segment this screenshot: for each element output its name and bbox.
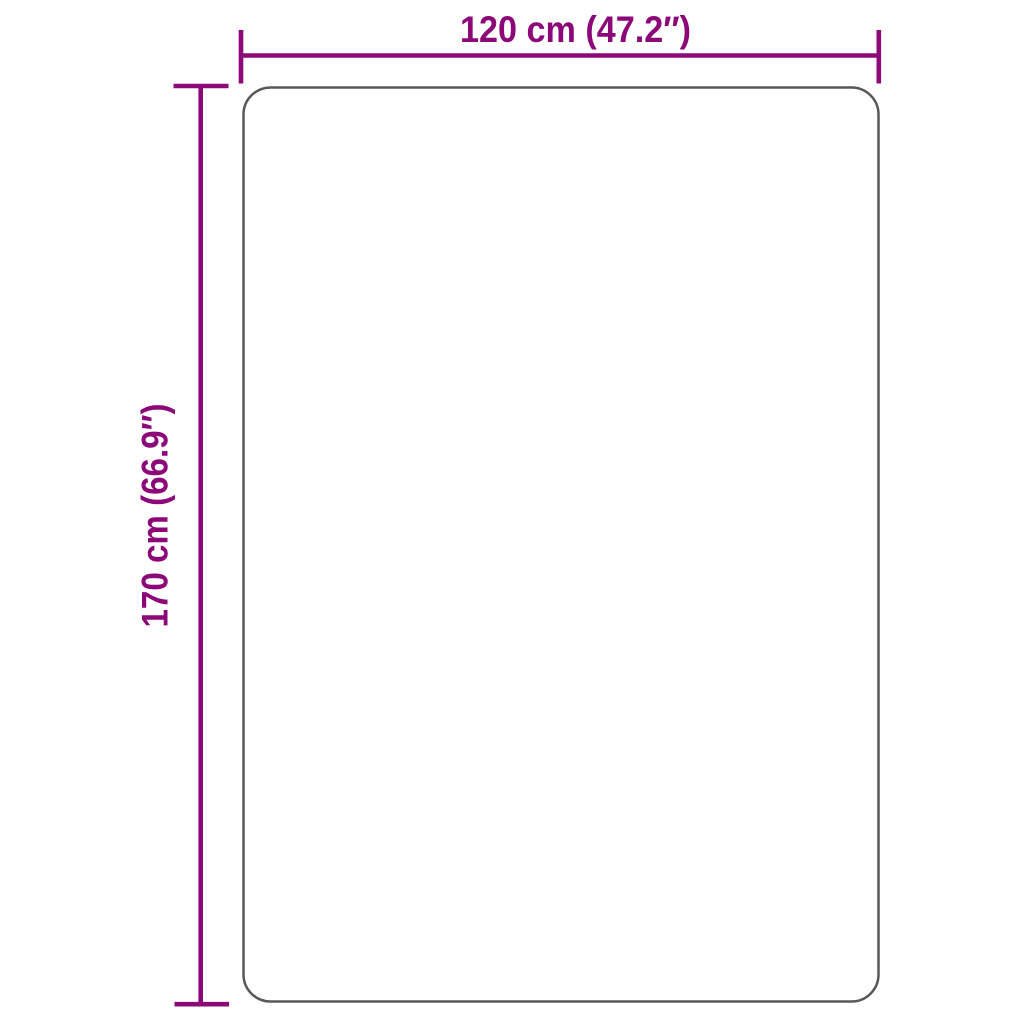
svg-text:170 cm (66.9″): 170 cm (66.9″) [135,404,176,628]
svg-text:120 cm (47.2″): 120 cm (47.2″) [460,9,691,50]
